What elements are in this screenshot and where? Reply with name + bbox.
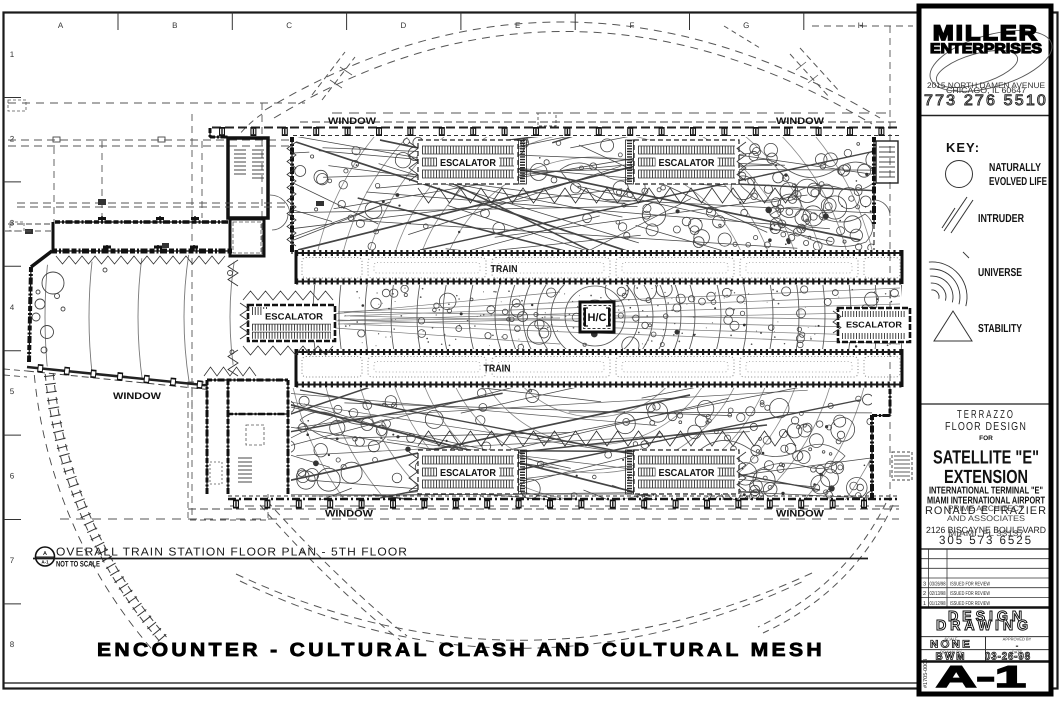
svg-text:ESCALATOR: ESCALATOR (440, 468, 497, 479)
svg-text:STABILITY: STABILITY (978, 323, 1022, 335)
svg-text:A-1: A-1 (41, 560, 49, 565)
svg-text:4: 4 (10, 303, 15, 312)
svg-text:FOR: FOR (979, 435, 993, 442)
svg-text:TRAIN: TRAIN (484, 364, 511, 375)
svg-text:01/12/98: 01/12/98 (930, 601, 946, 607)
svg-text:FLOOR DESIGN: FLOOR DESIGN (945, 421, 1027, 433)
svg-text:A: A (43, 551, 47, 557)
svg-text:C: C (286, 21, 292, 30)
svg-text:ISSUED FOR REVIEW: ISSUED FOR REVIEW (950, 601, 991, 607)
svg-text:WINDOW: WINDOW (776, 116, 824, 127)
svg-text:F: F (630, 21, 635, 30)
svg-text:A-1: A-1 (936, 661, 1026, 694)
svg-text:3: 3 (10, 219, 15, 228)
svg-text:A: A (58, 21, 64, 30)
svg-text:1: 1 (10, 50, 15, 59)
svg-text:INTRUDER: INTRUDER (978, 213, 1025, 225)
svg-text:ISSUED FOR REVIEW: ISSUED FOR REVIEW (950, 582, 991, 588)
svg-text:SATELLITE "E": SATELLITE "E" (933, 448, 1039, 469)
svg-text:G: G (743, 21, 749, 30)
svg-text:WINDOW: WINDOW (325, 509, 373, 520)
svg-text:NATURALLY: NATURALLY (989, 162, 1041, 174)
svg-text:ESCALATOR: ESCALATOR (265, 312, 324, 322)
svg-text:TERRAZZO: TERRAZZO (957, 409, 1015, 421)
svg-text:WINDOW: WINDOW (328, 116, 376, 127)
svg-text:ESCALATOR: ESCALATOR (659, 158, 716, 169)
svg-text:03/26/98: 03/26/98 (930, 582, 946, 588)
svg-text:3: 3 (923, 582, 926, 588)
svg-text:2: 2 (923, 591, 926, 597)
svg-text:KEY:: KEY: (946, 140, 980, 155)
svg-text:1: 1 (923, 601, 926, 607)
svg-text:H: H (858, 21, 864, 30)
svg-text:ENCOUNTER - CULTURAL CLASH A: ENCOUNTER - CULTURAL CLASH AND CULTURAL … (97, 640, 825, 661)
svg-text:2: 2 (10, 134, 15, 143)
svg-text:DRAWING: DRAWING (936, 618, 1032, 634)
svg-text:5: 5 (10, 387, 15, 396)
svg-text:UNIVERSE: UNIVERSE (978, 267, 1022, 279)
svg-text:WINDOW: WINDOW (113, 391, 161, 402)
svg-text:773 276 5510: 773 276 5510 (924, 92, 1048, 109)
svg-text:#1705-0004: #1705-0004 (923, 659, 929, 688)
svg-text:6: 6 (10, 472, 15, 481)
svg-text:E: E (515, 21, 520, 30)
svg-text:D: D (401, 21, 407, 30)
svg-text:OVERALL TRAIN STATION FLOOR PL: OVERALL TRAIN STATION FLOOR PLAN - 5TH F… (56, 547, 408, 559)
svg-text:AND ASSOCIATES: AND ASSOCIATES (947, 514, 1025, 523)
svg-text:02/13/98: 02/13/98 (930, 591, 946, 597)
svg-text:ESCALATOR: ESCALATOR (440, 158, 497, 169)
svg-text:ENTERPRISES: ENTERPRISES (930, 40, 1042, 56)
svg-text:WINDOW: WINDOW (776, 509, 824, 520)
svg-text:ESCALATOR: ESCALATOR (659, 468, 716, 479)
svg-text:NOT TO SCALE: NOT TO SCALE (56, 560, 100, 569)
svg-text:ESCALATOR: ESCALATOR (846, 320, 902, 330)
svg-text:TRAIN: TRAIN (491, 264, 518, 275)
svg-text:EVOLVED LIFE: EVOLVED LIFE (989, 176, 1047, 188)
svg-text:7: 7 (10, 556, 15, 565)
svg-text:305 573 6525: 305 573 6525 (939, 533, 1033, 547)
svg-text:H/C: H/C (588, 312, 607, 324)
svg-text:B: B (172, 21, 177, 30)
svg-text:ISSUED FOR REVIEW: ISSUED FOR REVIEW (950, 591, 991, 597)
svg-text:8: 8 (10, 640, 15, 649)
